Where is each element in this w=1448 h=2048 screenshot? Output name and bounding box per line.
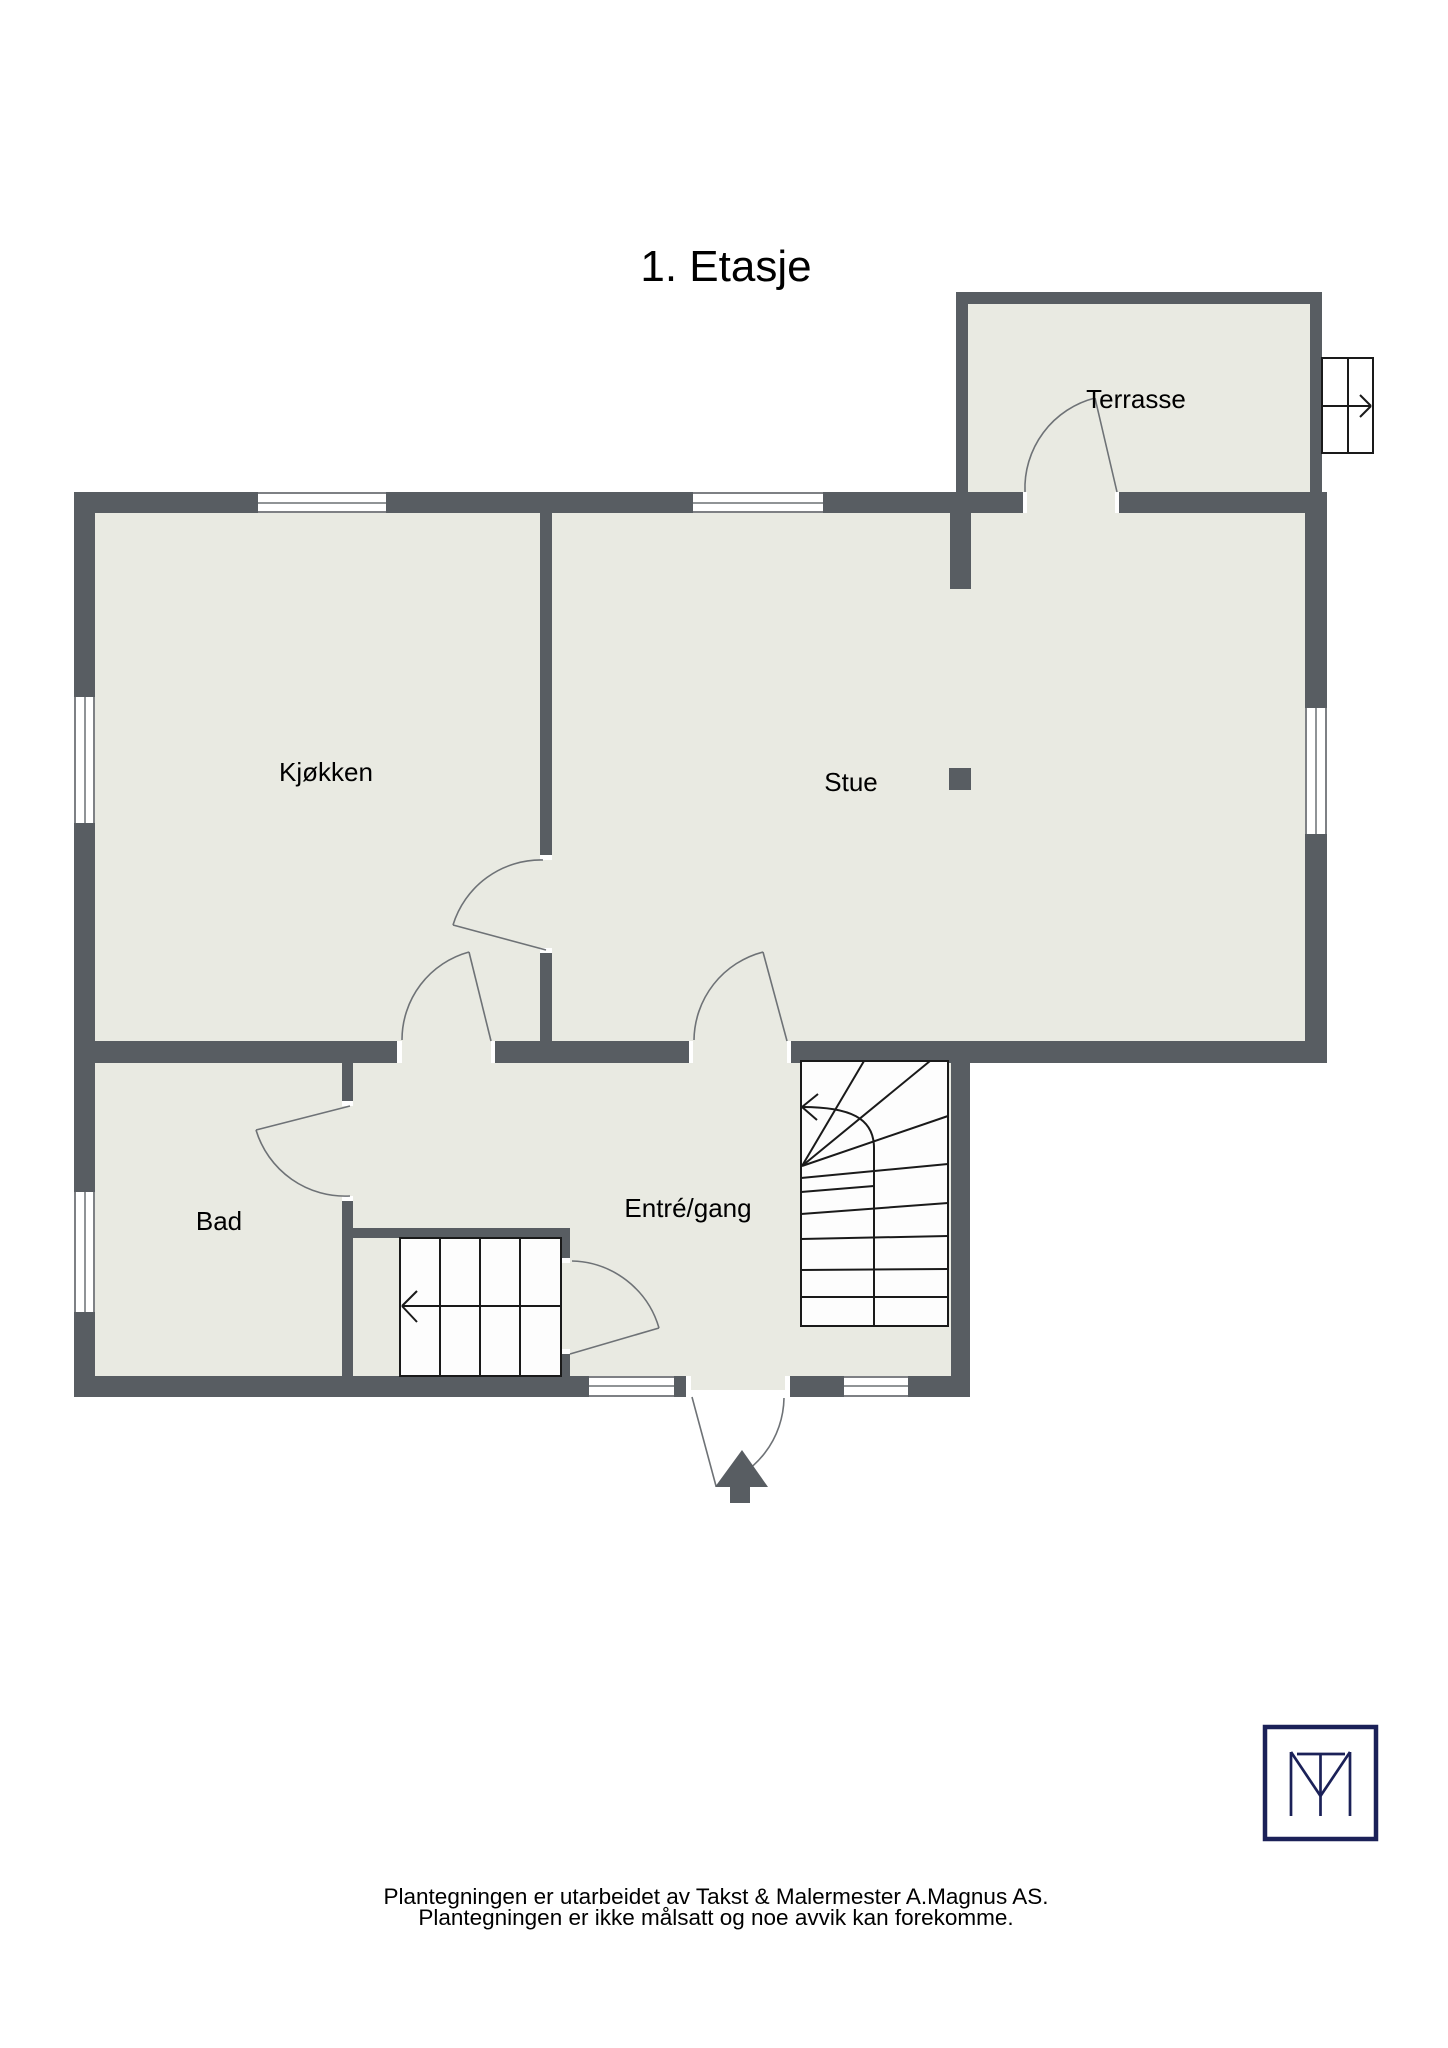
svg-text:Terrasse: Terrasse [1086,384,1186,414]
svg-text:1. Etasje: 1. Etasje [640,242,811,291]
svg-text:Kjøkken: Kjøkken [279,757,373,787]
svg-text:Bad: Bad [196,1206,242,1236]
svg-text:Stue: Stue [824,767,878,797]
svg-text:Entré/gang: Entré/gang [624,1193,751,1223]
svg-text:Plantegningen er ikke målsatt: Plantegningen er ikke målsatt og noe avv… [418,1905,1013,1930]
